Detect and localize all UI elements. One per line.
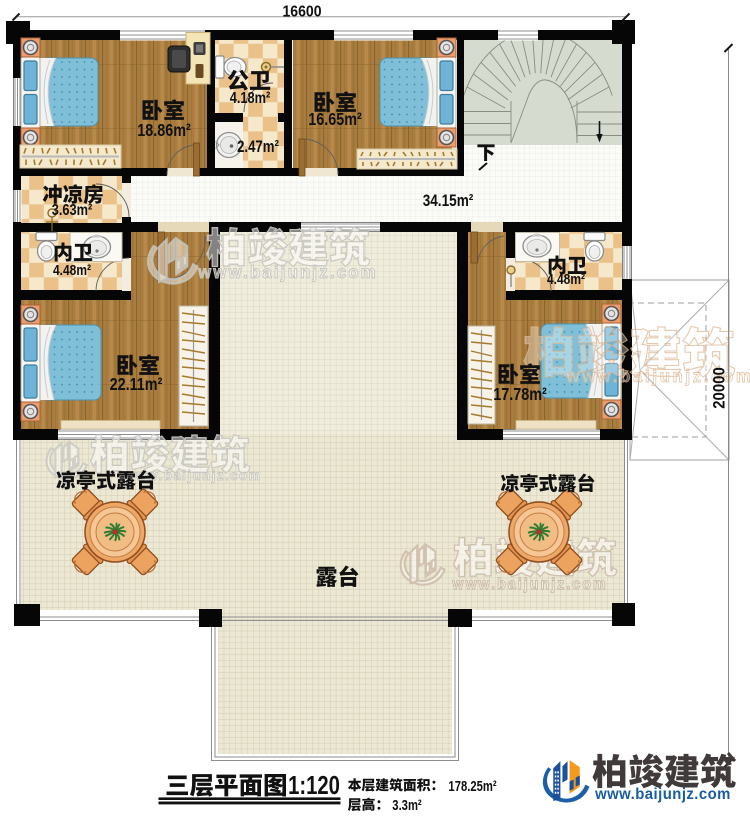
svg-text:22.11m²: 22.11m²: [110, 375, 163, 395]
svg-text:178.25m²: 178.25m²: [448, 777, 497, 794]
svg-text:3.63m²: 3.63m²: [52, 202, 93, 220]
svg-text:3.3m²: 3.3m²: [392, 796, 422, 813]
svg-text:4.48m²: 4.48m²: [547, 271, 585, 288]
svg-text:18.86m²: 18.86m²: [137, 121, 191, 141]
svg-text:2.47m²: 2.47m²: [237, 138, 279, 157]
svg-text:20000: 20000: [711, 367, 729, 409]
svg-text:16600: 16600: [282, 3, 321, 21]
svg-text:4.48m²: 4.48m²: [53, 262, 91, 279]
svg-text:4.18m²: 4.18m²: [230, 90, 271, 108]
svg-text:www.baijunjz.com: www.baijunjz.com: [451, 577, 607, 594]
svg-text:www.baijunjz.com: www.baijunjz.com: [197, 261, 378, 282]
svg-text:www.baijunjz.com: www.baijunjz.com: [594, 786, 731, 804]
svg-text:17.78m²: 17.78m²: [493, 385, 547, 405]
svg-text:1:120: 1:120: [288, 771, 340, 800]
svg-text:16.65m²: 16.65m²: [308, 110, 362, 130]
svg-text:34.15m²: 34.15m²: [423, 192, 474, 211]
